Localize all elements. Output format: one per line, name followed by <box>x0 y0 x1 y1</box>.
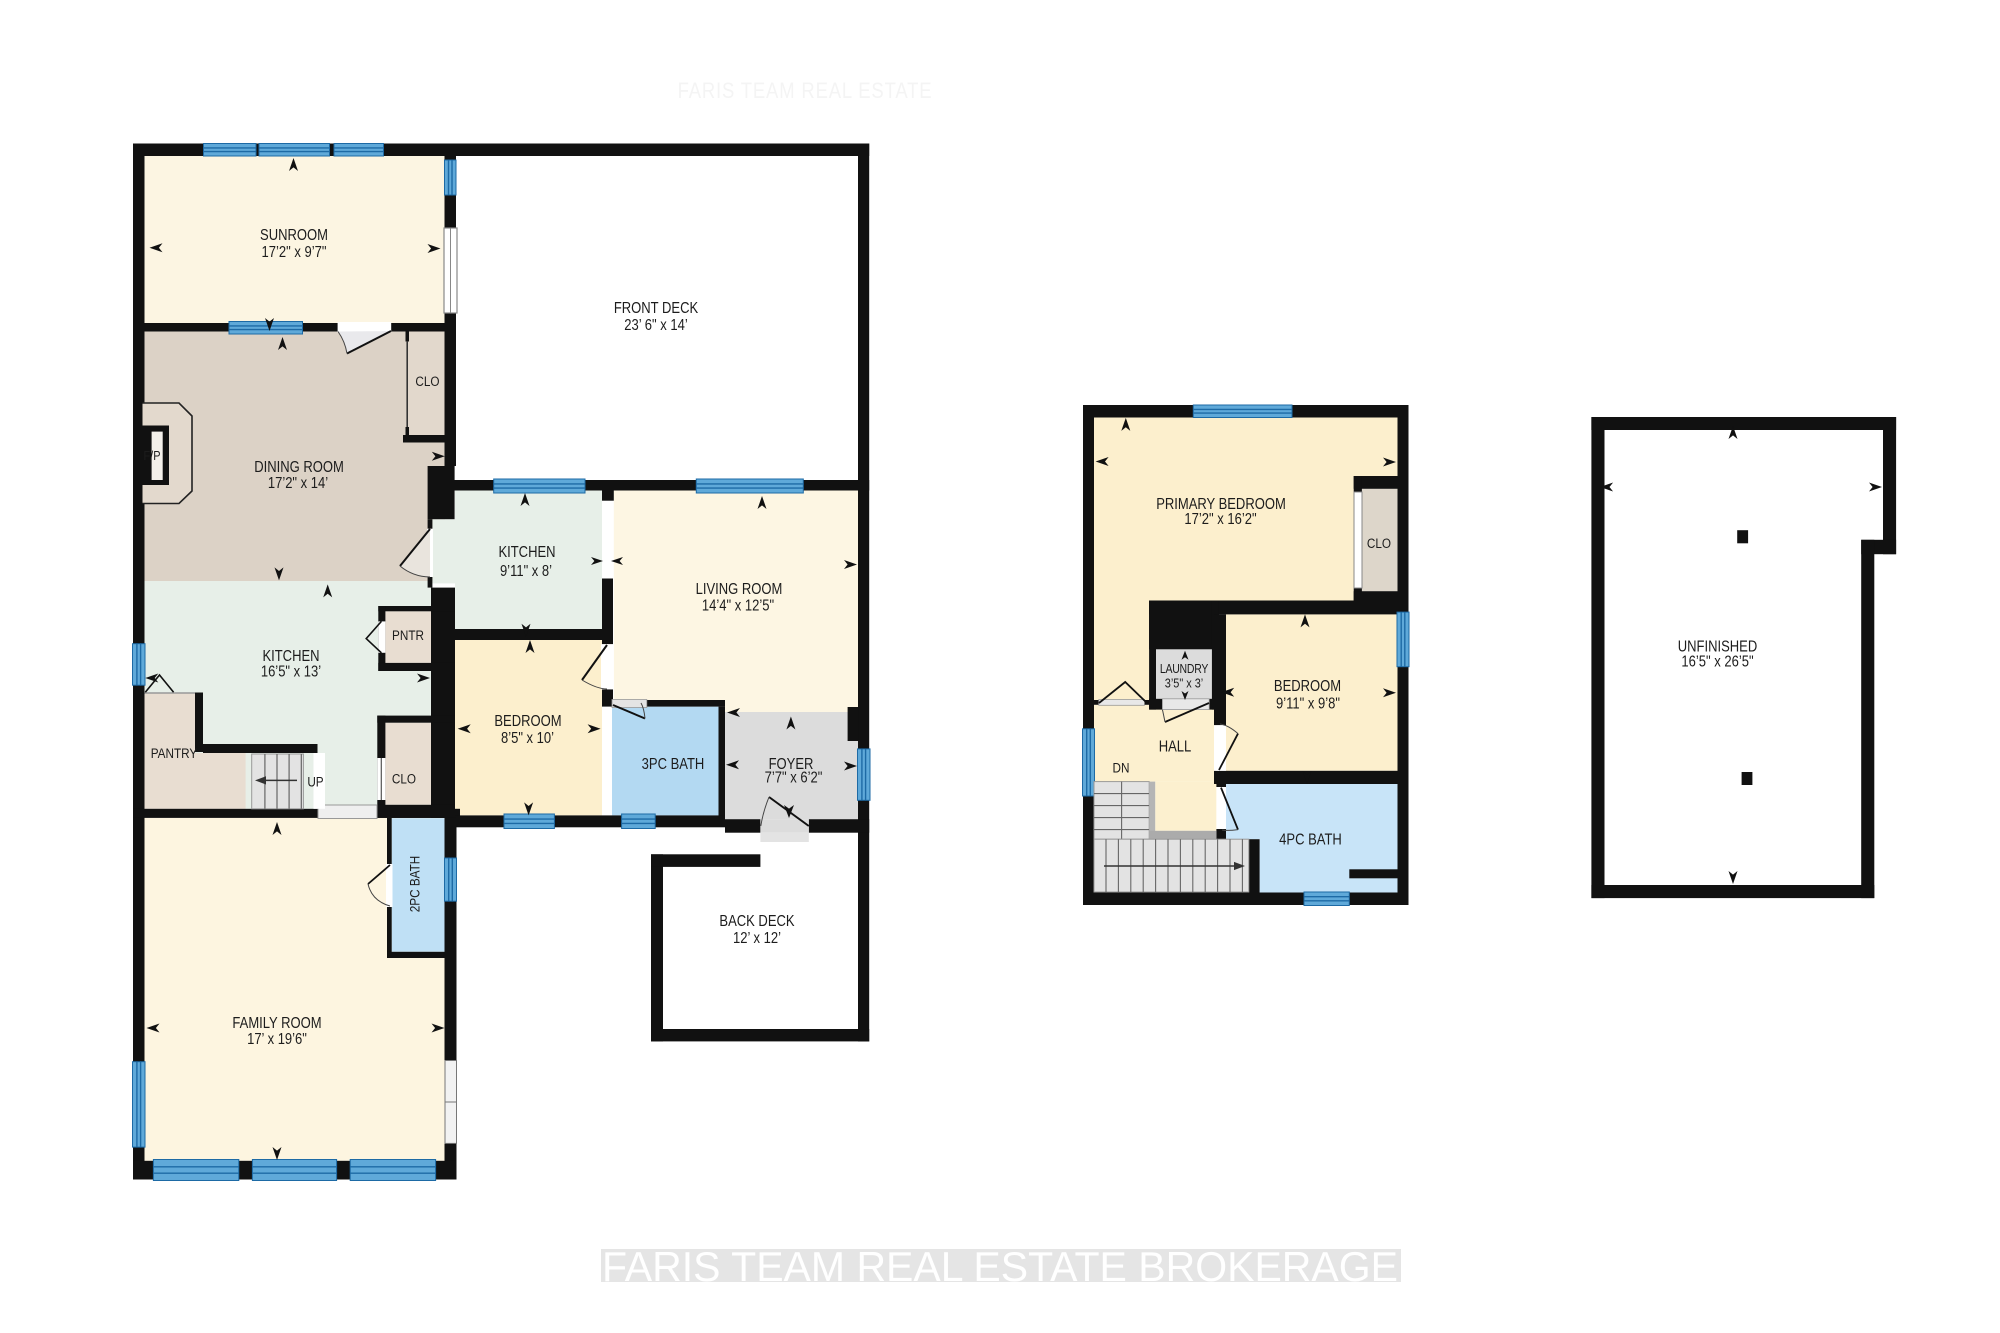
svg-text:23’ 6" x 14’: 23’ 6" x 14’ <box>624 317 687 334</box>
svg-text:9’11" x 8’: 9’11" x 8’ <box>500 563 552 580</box>
svg-text:CLO: CLO <box>392 771 416 787</box>
svg-text:17’2" x 16’2": 17’2" x 16’2" <box>1184 511 1256 528</box>
svg-text:LAUNDRY: LAUNDRY <box>1160 663 1209 676</box>
svg-text:17’ x 19’6": 17’ x 19’6" <box>247 1031 307 1048</box>
svg-text:BEDROOM: BEDROOM <box>494 713 561 730</box>
svg-text:7’7" x 6’2": 7’7" x 6’2" <box>765 770 823 787</box>
svg-text:SUNROOM: SUNROOM <box>260 227 328 244</box>
svg-text:KITCHEN: KITCHEN <box>498 544 555 561</box>
svg-text:17’2" x 14’: 17’2" x 14’ <box>268 475 328 492</box>
svg-text:8’5" x 10’: 8’5" x 10’ <box>501 730 554 747</box>
svg-text:FARIS TEAM REAL ESTATE BROKERA: FARIS TEAM REAL ESTATE BROKERAGE <box>602 1243 1398 1290</box>
svg-text:BACK DECK: BACK DECK <box>719 913 795 930</box>
svg-text:4PC BATH: 4PC BATH <box>1279 832 1342 849</box>
svg-text:16’5" x 26’5": 16’5" x 26’5" <box>1681 654 1753 671</box>
svg-text:2PC BATH: 2PC BATH <box>407 856 423 913</box>
svg-text:FAMILY ROOM: FAMILY ROOM <box>232 1015 321 1032</box>
svg-text:DN: DN <box>1113 760 1130 776</box>
svg-text:12’ x 12’: 12’ x 12’ <box>733 930 781 947</box>
svg-text:PANTRY: PANTRY <box>151 745 198 761</box>
svg-text:FRONT DECK: FRONT DECK <box>614 300 699 317</box>
svg-text:16’5" x 13’: 16’5" x 13’ <box>261 664 321 681</box>
svg-text:9’11" x 9’8": 9’11" x 9’8" <box>1276 696 1340 713</box>
svg-text:14’4" x 12’5": 14’4" x 12’5" <box>702 598 774 615</box>
svg-text:LIVING ROOM: LIVING ROOM <box>696 581 783 598</box>
svg-text:3PC BATH: 3PC BATH <box>642 756 705 773</box>
svg-text:BEDROOM: BEDROOM <box>1274 678 1341 695</box>
svg-text:UP: UP <box>307 774 323 790</box>
svg-text:PNTR: PNTR <box>392 627 424 643</box>
svg-text:F/P: F/P <box>144 448 161 463</box>
svg-text:HALL: HALL <box>1159 739 1192 756</box>
svg-text:FARIS TEAM REAL ESTATE: FARIS TEAM REAL ESTATE <box>678 80 933 104</box>
svg-text:CLO: CLO <box>1367 535 1391 551</box>
svg-text:DINING ROOM: DINING ROOM <box>254 459 344 476</box>
svg-text:17’2" x 9’7": 17’2" x 9’7" <box>262 244 327 261</box>
svg-text:CLO: CLO <box>415 373 439 389</box>
svg-text:3’5" x 3’: 3’5" x 3’ <box>1165 676 1203 691</box>
